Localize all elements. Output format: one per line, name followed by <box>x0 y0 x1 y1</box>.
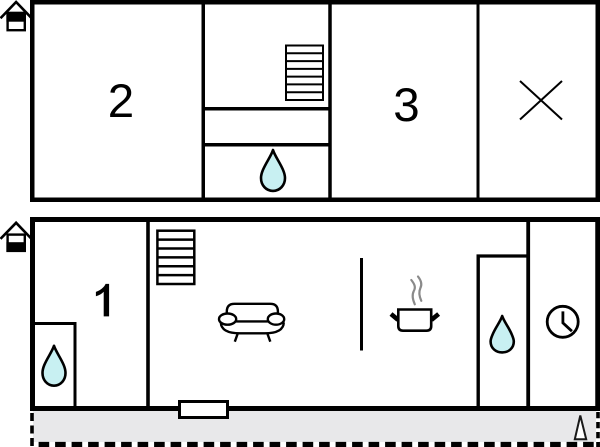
svg-text:2: 2 <box>108 75 134 128</box>
svg-text:3: 3 <box>393 79 419 132</box>
